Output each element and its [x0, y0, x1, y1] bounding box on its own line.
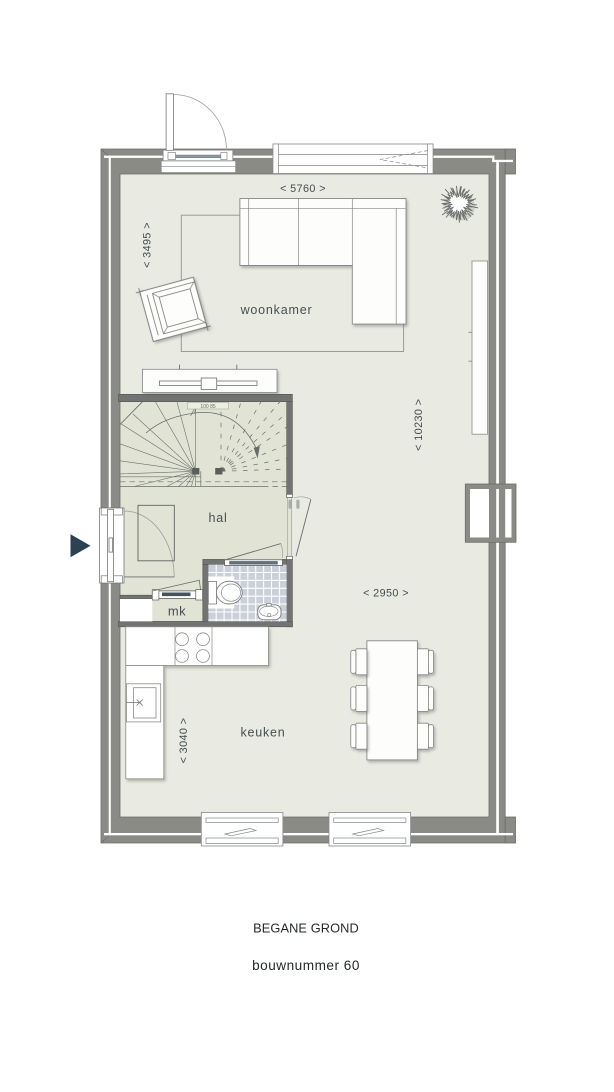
svg-text:< 5760 >: < 5760 >	[280, 183, 326, 195]
svg-text:hal: hal	[208, 511, 227, 525]
svg-text:bouwnummer 60: bouwnummer 60	[252, 958, 360, 973]
svg-text:100 85: 100 85	[200, 404, 216, 410]
svg-text:BEGANE GROND: BEGANE GROND	[253, 921, 359, 936]
svg-text:woonkamer: woonkamer	[240, 303, 313, 317]
svg-text:< 2950 >: < 2950 >	[363, 588, 409, 600]
svg-text:mk: mk	[168, 604, 186, 619]
svg-text:< 3495 >: < 3495 >	[141, 222, 153, 268]
svg-text:keuken: keuken	[240, 726, 285, 740]
svg-text:< 3040 >: < 3040 >	[178, 718, 190, 764]
svg-text:< 10230 >: < 10230 >	[413, 399, 425, 451]
